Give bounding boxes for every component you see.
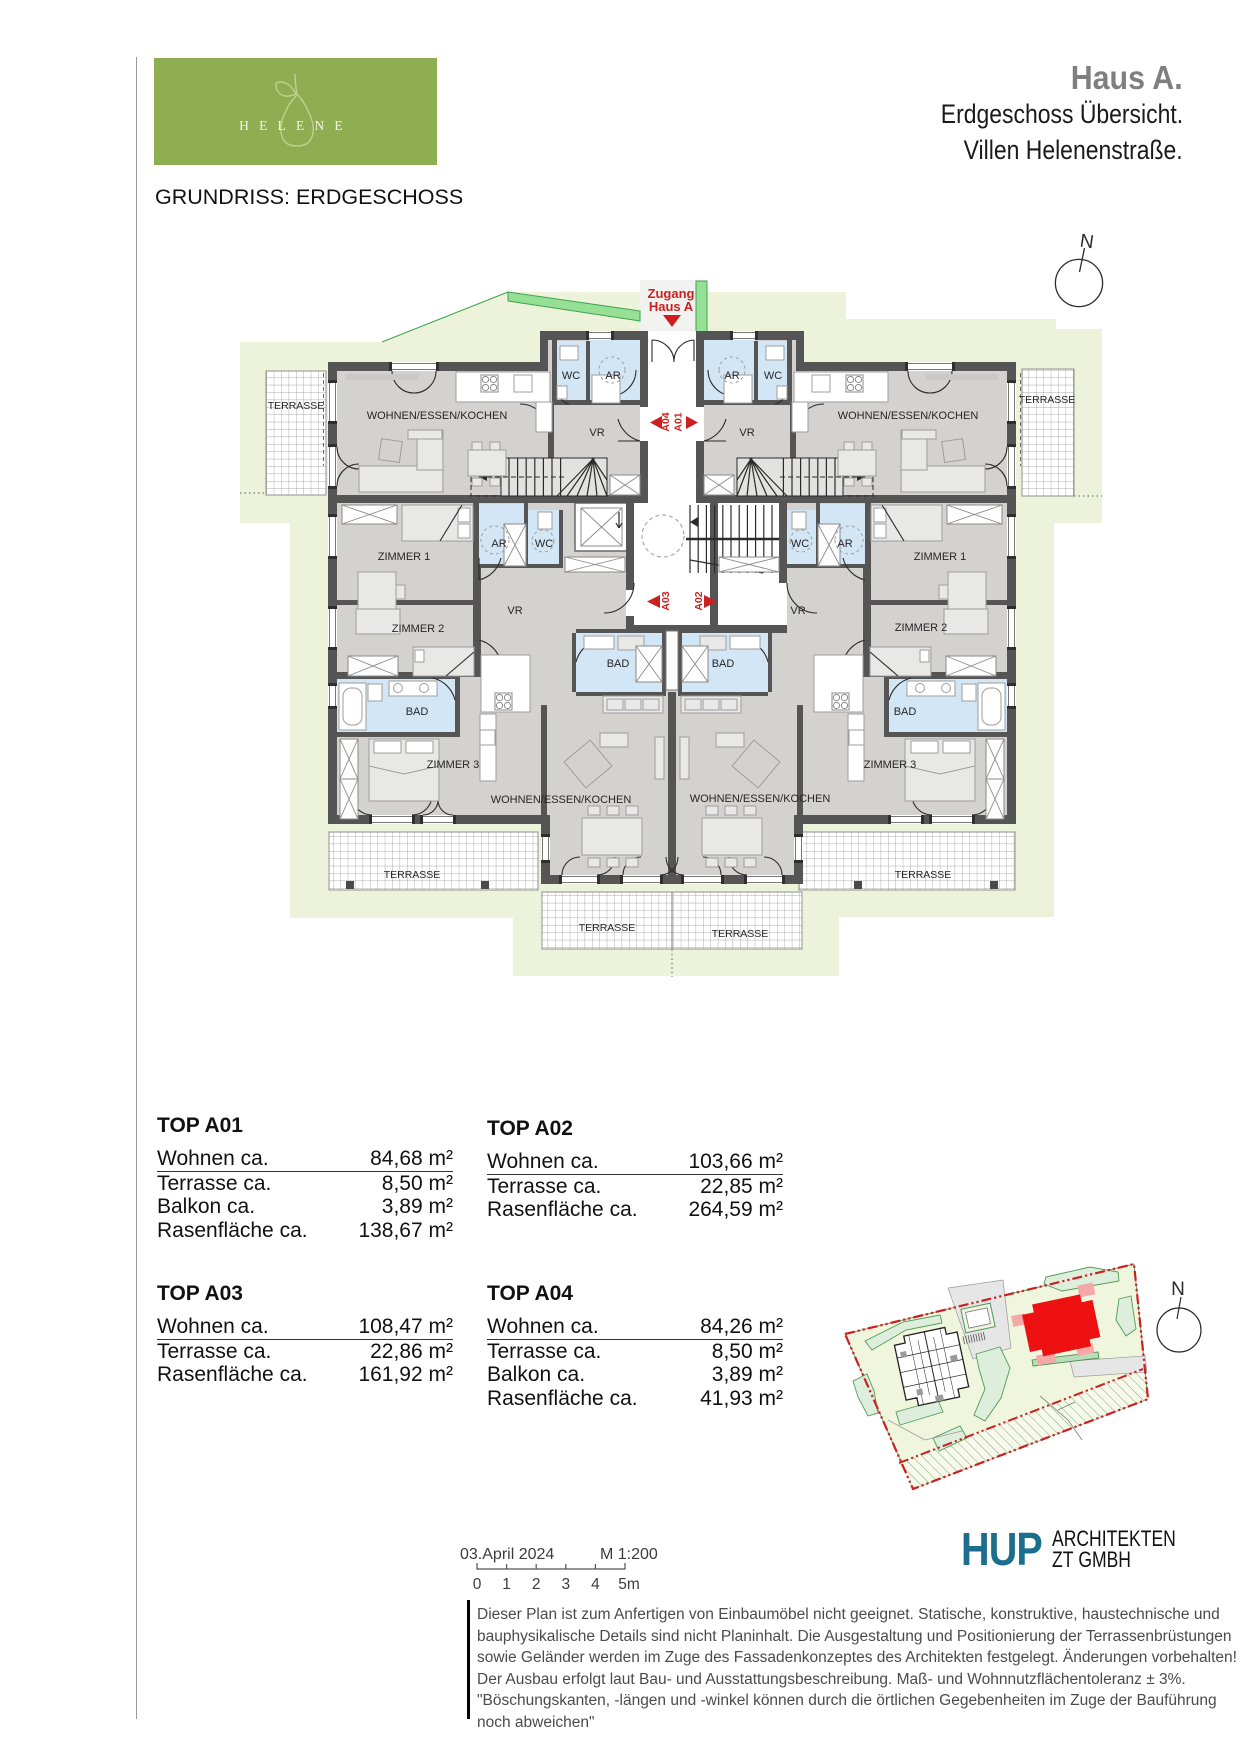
svg-text:ZIMMER 3: ZIMMER 3 <box>427 759 480 771</box>
svg-text:VR: VR <box>507 605 522 617</box>
svg-text:VR: VR <box>589 427 604 439</box>
svg-text:TERRASSE: TERRASSE <box>712 928 769 940</box>
svg-text:0: 0 <box>473 1576 482 1593</box>
svg-text:1: 1 <box>502 1576 511 1593</box>
svg-text:AR: AR <box>605 370 620 382</box>
svg-text:VR: VR <box>739 427 754 439</box>
svg-text:ZIMMER 2: ZIMMER 2 <box>895 622 948 634</box>
svg-text:5m: 5m <box>618 1576 640 1593</box>
svg-text:WC: WC <box>791 538 809 550</box>
svg-text:A02: A02 <box>693 591 705 610</box>
svg-text:WC: WC <box>764 370 782 382</box>
svg-text:BAD: BAD <box>712 658 735 670</box>
svg-text:WOHNEN/ESSEN/KOCHEN: WOHNEN/ESSEN/KOCHEN <box>491 794 632 806</box>
svg-text:N: N <box>1171 1279 1185 1300</box>
svg-text:TERRASSE: TERRASSE <box>579 922 636 934</box>
svg-text:3: 3 <box>561 1576 570 1593</box>
svg-text:WOHNEN/ESSEN/KOCHEN: WOHNEN/ESSEN/KOCHEN <box>367 410 508 422</box>
svg-text:4: 4 <box>591 1576 600 1593</box>
svg-text:TERRASSE: TERRASSE <box>1019 394 1076 406</box>
svg-text:TERRASSE: TERRASSE <box>268 400 325 412</box>
svg-text:A04: A04 <box>660 412 672 431</box>
svg-text:WOHNEN/ESSEN/KOCHEN: WOHNEN/ESSEN/KOCHEN <box>690 793 831 805</box>
svg-text:ZIMMER 1: ZIMMER 1 <box>914 551 967 563</box>
svg-text:A01: A01 <box>673 412 685 431</box>
svg-text:TERRASSE: TERRASSE <box>384 869 441 881</box>
svg-text:AR: AR <box>724 370 739 382</box>
svg-text:BAD: BAD <box>607 658 630 670</box>
svg-text:AR: AR <box>491 538 506 550</box>
svg-text:AR: AR <box>837 538 852 550</box>
svg-text:Haus A: Haus A <box>649 299 694 314</box>
svg-text:2: 2 <box>532 1576 541 1593</box>
svg-text:VR: VR <box>790 605 805 617</box>
svg-text:BAD: BAD <box>406 706 429 718</box>
svg-text:ZIMMER 3: ZIMMER 3 <box>864 759 917 771</box>
svg-text:N: N <box>1079 231 1096 254</box>
svg-text:TERRASSE: TERRASSE <box>895 869 952 881</box>
svg-text:WOHNEN/ESSEN/KOCHEN: WOHNEN/ESSEN/KOCHEN <box>838 410 979 422</box>
svg-text:ZIMMER 1: ZIMMER 1 <box>378 551 431 563</box>
svg-text:WC: WC <box>535 538 553 550</box>
svg-text:WC: WC <box>562 370 580 382</box>
svg-text:A03: A03 <box>660 591 672 610</box>
svg-text:BAD: BAD <box>894 706 917 718</box>
svg-text:ZIMMER 2: ZIMMER 2 <box>392 623 445 635</box>
